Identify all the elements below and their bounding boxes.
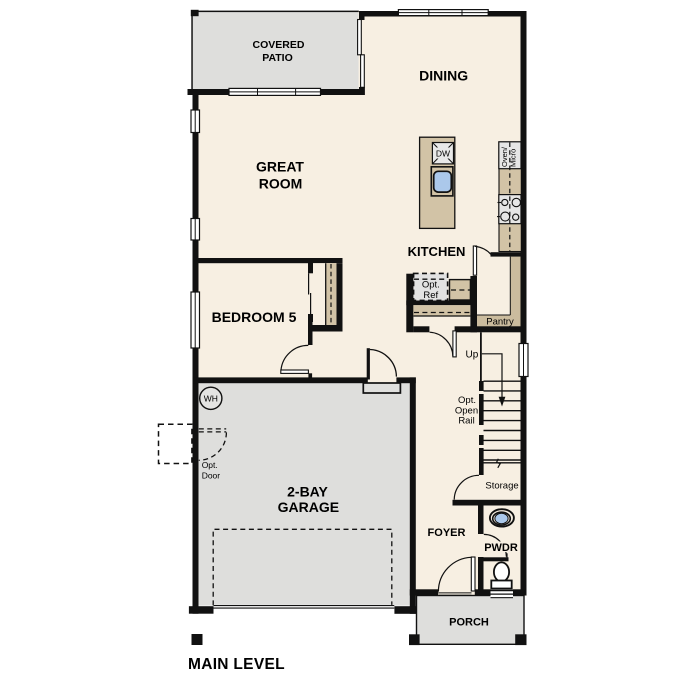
svg-text:BEDROOM 5: BEDROOM 5 [212,309,297,325]
svg-text:DINING: DINING [419,68,468,84]
svg-text:GREAT: GREAT [256,158,304,174]
svg-text:Opt.: Opt. [422,280,440,291]
svg-text:MAIN LEVEL: MAIN LEVEL [188,656,285,673]
svg-text:Up: Up [466,350,479,361]
svg-text:2-BAY: 2-BAY [287,483,328,499]
svg-text:DW: DW [436,149,450,159]
svg-text:FOYER: FOYER [428,527,466,539]
svg-text:PORCH: PORCH [449,616,489,628]
svg-text:Opt.: Opt. [202,460,218,470]
svg-text:Rail: Rail [458,416,474,427]
svg-text:Door: Door [202,470,221,480]
svg-text:GARAGE: GARAGE [278,499,339,515]
svg-text:Ref: Ref [423,290,438,301]
svg-text:PATIO: PATIO [262,52,293,64]
svg-text:Storage: Storage [485,481,518,492]
svg-text:ROOM: ROOM [259,175,303,191]
svg-text:COVERED: COVERED [253,39,305,51]
svg-text:PWDR: PWDR [484,542,518,554]
svg-text:KITCHEN: KITCHEN [408,244,466,259]
svg-text:Pantry: Pantry [486,317,514,328]
svg-text:WH: WH [204,394,218,404]
